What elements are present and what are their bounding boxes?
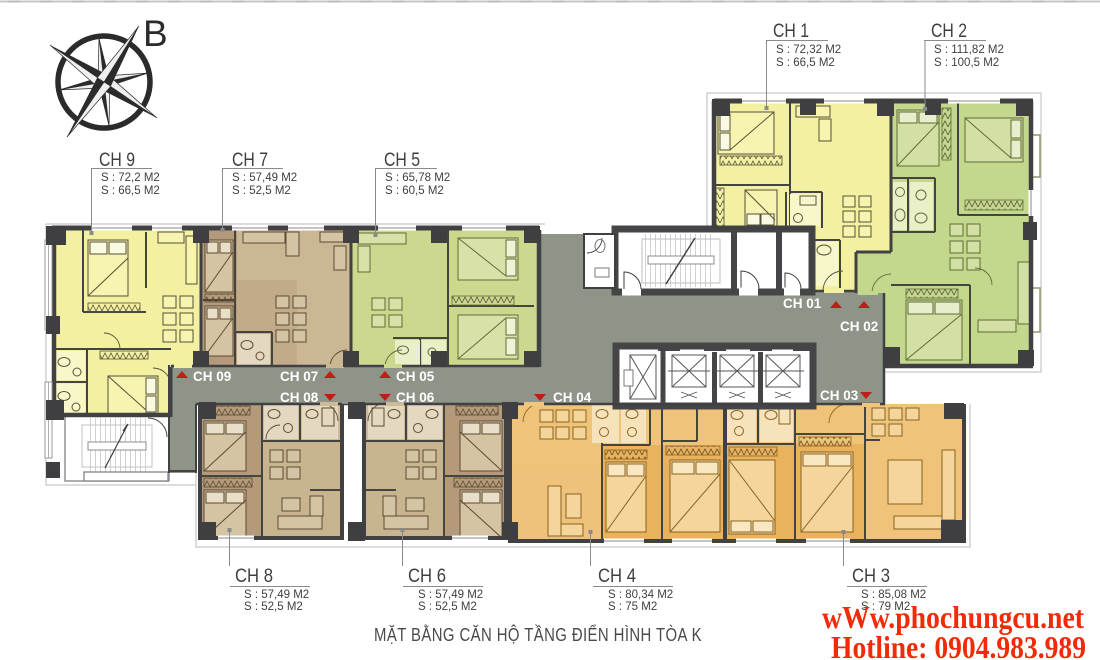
svg-text:CH 06: CH 06: [396, 390, 435, 405]
svg-text:CH 05: CH 05: [396, 369, 435, 384]
svg-text:CH 2: CH 2: [931, 21, 967, 42]
svg-text:CH 01: CH 01: [783, 296, 822, 311]
svg-text:CH 07: CH 07: [280, 369, 318, 384]
svg-text:S : 75 M2: S : 75 M2: [608, 601, 657, 613]
svg-text:CH 5: CH 5: [384, 150, 420, 171]
svg-text:S : 57,49 M2: S : 57,49 M2: [418, 589, 483, 601]
svg-text:CH 09: CH 09: [193, 369, 231, 384]
svg-text:S : 72,2 M2: S : 72,2 M2: [101, 172, 160, 184]
svg-text:MẶT BẰNG CĂN HỘ TẦNG ĐIỂN HÌNH: MẶT BẰNG CĂN HỘ TẦNG ĐIỂN HÌNH TÒA K: [374, 624, 702, 645]
svg-text:S : 66,5 M2: S : 66,5 M2: [101, 185, 160, 197]
svg-text:S : 52,5 M2: S : 52,5 M2: [418, 601, 477, 613]
svg-text:S : 65,78 M2: S : 65,78 M2: [385, 172, 450, 184]
svg-text:CH 04: CH 04: [553, 390, 592, 405]
svg-text:Hotline: 0904.983.989: Hotline: 0904.983.989: [831, 630, 1086, 660]
svg-text:CH 02: CH 02: [840, 319, 878, 334]
svg-text:S : 57,49 M2: S : 57,49 M2: [232, 172, 297, 184]
svg-text:S : 111,82 M2: S : 111,82 M2: [934, 44, 1004, 56]
svg-text:S : 80,34 M2: S : 80,34 M2: [608, 589, 673, 601]
svg-text:CH 1: CH 1: [773, 21, 809, 42]
svg-text:S : 57,49 M2: S : 57,49 M2: [244, 589, 309, 601]
svg-text:S : 72,32 M2: S : 72,32 M2: [776, 44, 841, 56]
svg-text:S : 52,5 M2: S : 52,5 M2: [244, 601, 303, 613]
svg-text:S : 66,5 M2: S : 66,5 M2: [776, 57, 835, 69]
svg-text:CH 08: CH 08: [280, 390, 319, 405]
svg-text:B: B: [143, 13, 168, 54]
svg-text:CH 6: CH 6: [408, 566, 446, 587]
svg-text:CH 7: CH 7: [232, 150, 268, 171]
svg-text:CH 4: CH 4: [598, 566, 636, 587]
svg-text:CH 8: CH 8: [235, 566, 273, 587]
svg-text:S : 60,5 M2: S : 60,5 M2: [385, 185, 444, 197]
svg-text:CH 3: CH 3: [852, 566, 890, 587]
svg-text:S : 52,5 M2: S : 52,5 M2: [232, 185, 291, 197]
svg-text:CH 03: CH 03: [820, 388, 859, 403]
svg-text:CH 9: CH 9: [99, 150, 135, 171]
svg-text:S : 100,5 M2: S : 100,5 M2: [934, 57, 999, 69]
